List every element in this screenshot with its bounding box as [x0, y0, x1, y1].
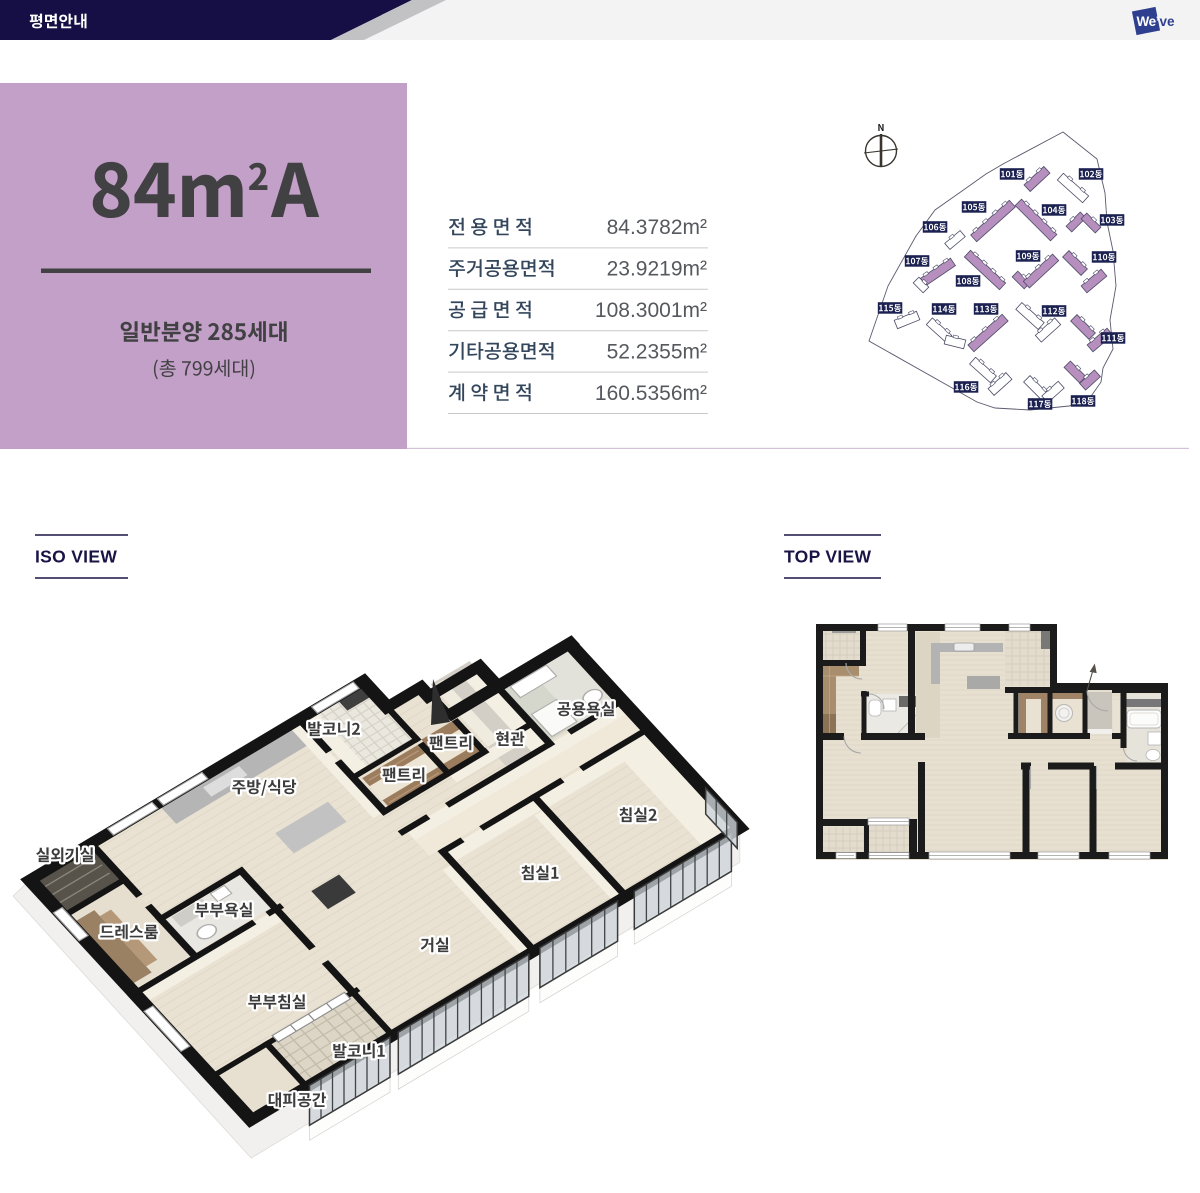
svg-text:84.3782m²: 84.3782m² — [607, 216, 707, 239]
svg-text:52.2355m²: 52.2355m² — [607, 340, 707, 363]
svg-text:108.3001m²: 108.3001m² — [595, 299, 707, 322]
svg-text:ve: ve — [1160, 14, 1176, 29]
svg-text:ISO VIEW: ISO VIEW — [35, 547, 117, 567]
svg-text:TOP VIEW: TOP VIEW — [784, 547, 872, 567]
svg-text:23.9219m²: 23.9219m² — [607, 258, 707, 281]
svg-text:160.5356m²: 160.5356m² — [595, 382, 707, 405]
svg-text:We’: We’ — [1137, 14, 1160, 29]
